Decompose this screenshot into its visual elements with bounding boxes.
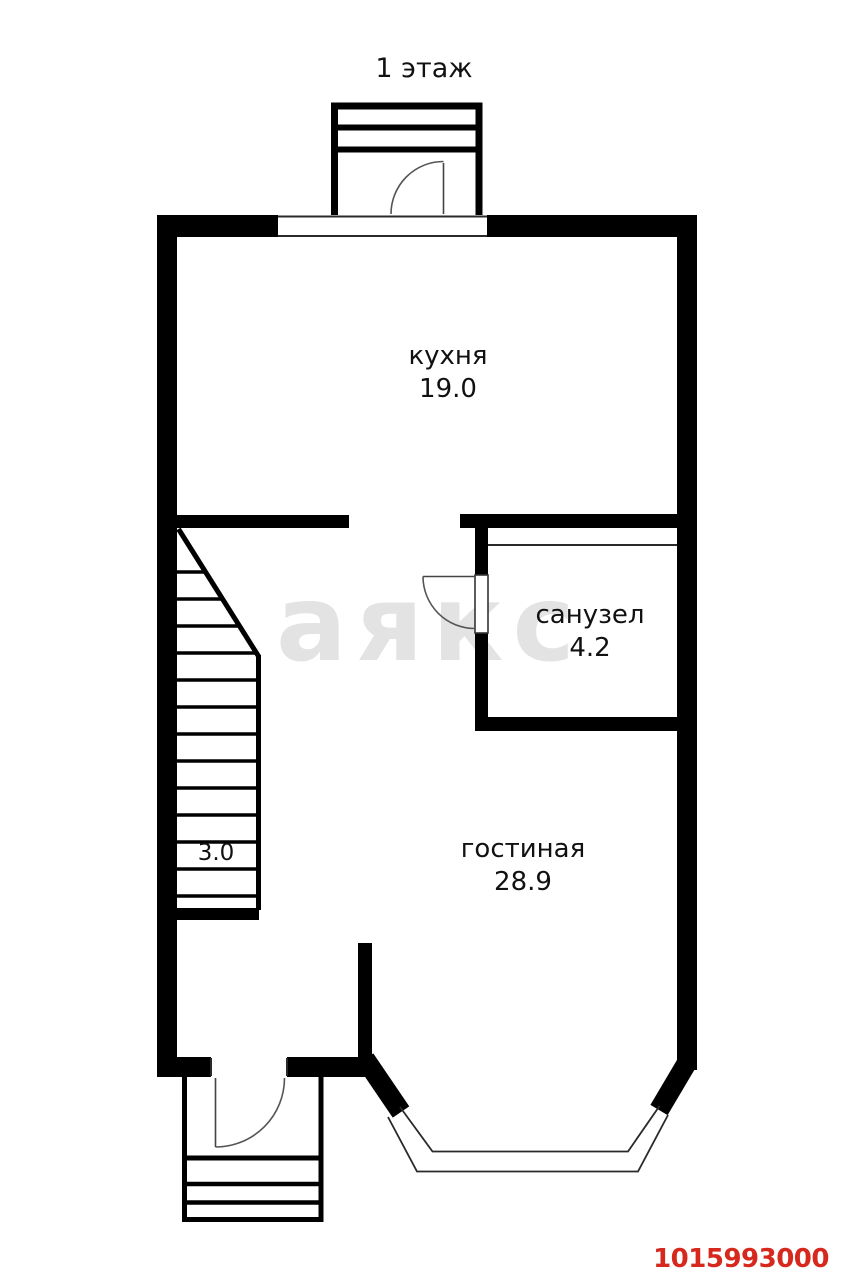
room-area-bathroom: 4.2 bbox=[535, 632, 644, 665]
bay-window-inner-line bbox=[400, 1106, 660, 1152]
floor-plan-page: аякс bbox=[0, 0, 852, 1280]
room-area-living: 28.9 bbox=[461, 866, 585, 899]
bottom-wall-opening bbox=[211, 1058, 287, 1076]
bathroom-door bbox=[423, 575, 488, 633]
room-label-living: гостиная 28.9 bbox=[461, 833, 585, 899]
stairs-area-label: 3.0 bbox=[198, 841, 235, 865]
top-porch-door-arc bbox=[391, 162, 444, 215]
room-area-kitchen: 19.0 bbox=[408, 373, 487, 406]
bottom-entrance-porch bbox=[185, 1077, 322, 1220]
room-label-bathroom: санузел 4.2 bbox=[535, 599, 644, 665]
room-name-living: гостиная bbox=[461, 833, 585, 866]
room-name-bathroom: санузел bbox=[535, 599, 644, 632]
bay-window bbox=[365, 1059, 688, 1172]
top-wall-opening bbox=[278, 217, 487, 237]
listing-id: 1015993000 bbox=[653, 1244, 829, 1274]
room-name-kitchen: кухня bbox=[408, 340, 487, 373]
top-entrance-porch bbox=[335, 106, 480, 215]
floor-plan-drawing bbox=[0, 0, 852, 1280]
bottom-porch-door bbox=[216, 1078, 285, 1147]
top-porch-door bbox=[391, 162, 444, 215]
bottom-porch-door-arc bbox=[216, 1078, 285, 1147]
bay-window-outer-line bbox=[388, 1115, 668, 1172]
room-label-kitchen: кухня 19.0 bbox=[408, 340, 487, 406]
bathroom-door-arc bbox=[423, 577, 475, 629]
floor-title: 1 этаж bbox=[375, 52, 472, 85]
